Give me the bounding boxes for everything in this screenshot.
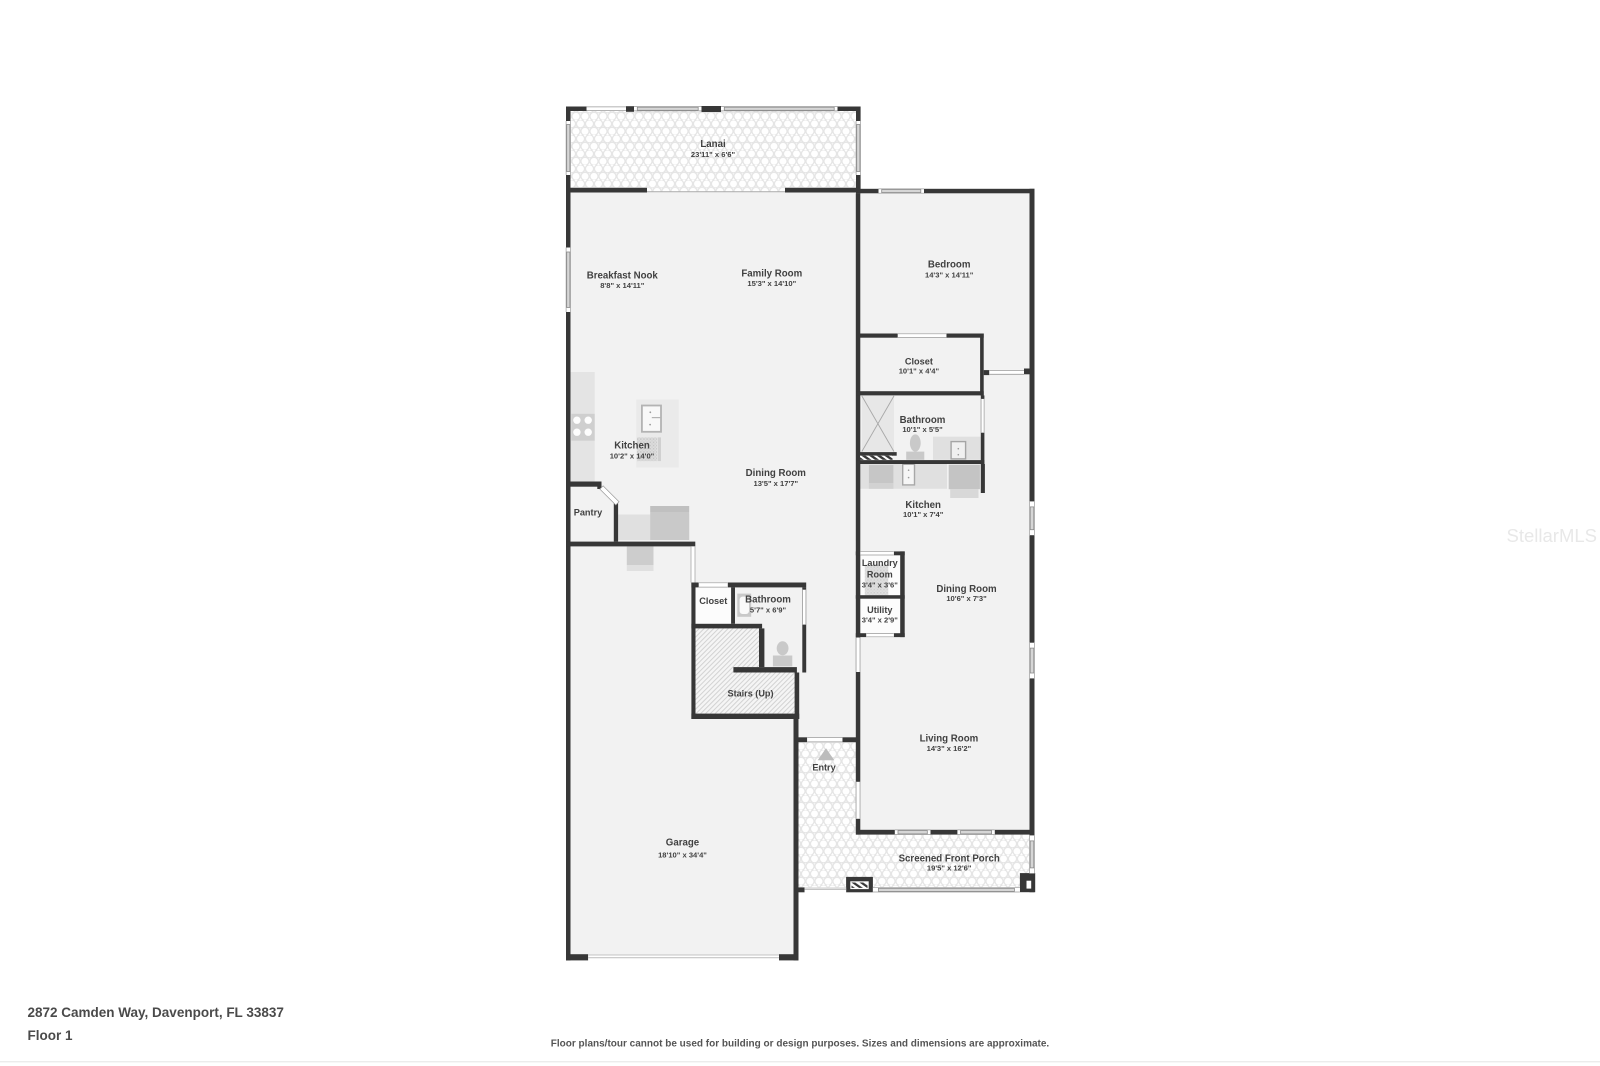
svg-text:10'1" x 4'4": 10'1" x 4'4" [899, 366, 940, 375]
svg-text:15'3" x 14'10": 15'3" x 14'10" [747, 279, 796, 288]
svg-text:Entry: Entry [812, 763, 836, 773]
svg-text:23'11" x 6'6": 23'11" x 6'6" [691, 150, 736, 159]
svg-text:Closet: Closet [905, 356, 933, 366]
svg-text:Breakfast Nook: Breakfast Nook [587, 271, 659, 282]
svg-text:3'4" x 2'9": 3'4" x 2'9" [862, 616, 899, 625]
svg-text:Floor plans/tour cannot be use: Floor plans/tour cannot be used for buil… [551, 1039, 1050, 1050]
svg-text:Garage: Garage [666, 838, 700, 849]
svg-text:Utility: Utility [867, 605, 893, 615]
svg-text:Stairs (Up): Stairs (Up) [728, 688, 774, 698]
svg-text:19'5" x 12'6": 19'5" x 12'6" [927, 864, 972, 873]
svg-text:14'3" x 16'2": 14'3" x 16'2" [927, 744, 972, 753]
svg-text:Kitchen: Kitchen [614, 440, 650, 451]
svg-text:10'6" x 7'3": 10'6" x 7'3" [946, 594, 987, 603]
svg-text:Family Room: Family Room [741, 269, 802, 280]
svg-text:Pantry: Pantry [574, 508, 603, 518]
svg-text:3'4" x 3'6": 3'4" x 3'6" [862, 580, 899, 589]
svg-text:10'1" x 7'4": 10'1" x 7'4" [903, 510, 944, 519]
svg-text:Bathroom: Bathroom [745, 594, 791, 605]
svg-text:13'5" x 17'7": 13'5" x 17'7" [753, 479, 798, 488]
svg-text:Room: Room [867, 570, 893, 580]
svg-text:StellarMLS: StellarMLS [1507, 525, 1597, 546]
svg-text:Floor 1: Floor 1 [28, 1028, 73, 1043]
svg-text:Closet: Closet [699, 596, 727, 606]
svg-text:5'7" x 6'9": 5'7" x 6'9" [750, 606, 787, 615]
svg-text:Living Room: Living Room [920, 733, 979, 744]
svg-text:Dining Room: Dining Room [746, 468, 807, 479]
svg-text:18'10" x 34'4": 18'10" x 34'4" [658, 850, 707, 859]
svg-text:10'2" x 14'0": 10'2" x 14'0" [610, 451, 655, 460]
svg-text:Lanai: Lanai [700, 139, 725, 150]
svg-text:14'3" x 14'11": 14'3" x 14'11" [925, 270, 974, 279]
svg-text:10'1" x 5'5": 10'1" x 5'5" [902, 425, 943, 434]
svg-text:8'8" x 14'11": 8'8" x 14'11" [600, 281, 645, 290]
svg-text:Bedroom: Bedroom [928, 260, 971, 271]
svg-text:Laundry: Laundry [862, 558, 899, 568]
svg-text:2872 Camden Way, Davenport, FL: 2872 Camden Way, Davenport, FL 33837 [28, 1005, 284, 1020]
